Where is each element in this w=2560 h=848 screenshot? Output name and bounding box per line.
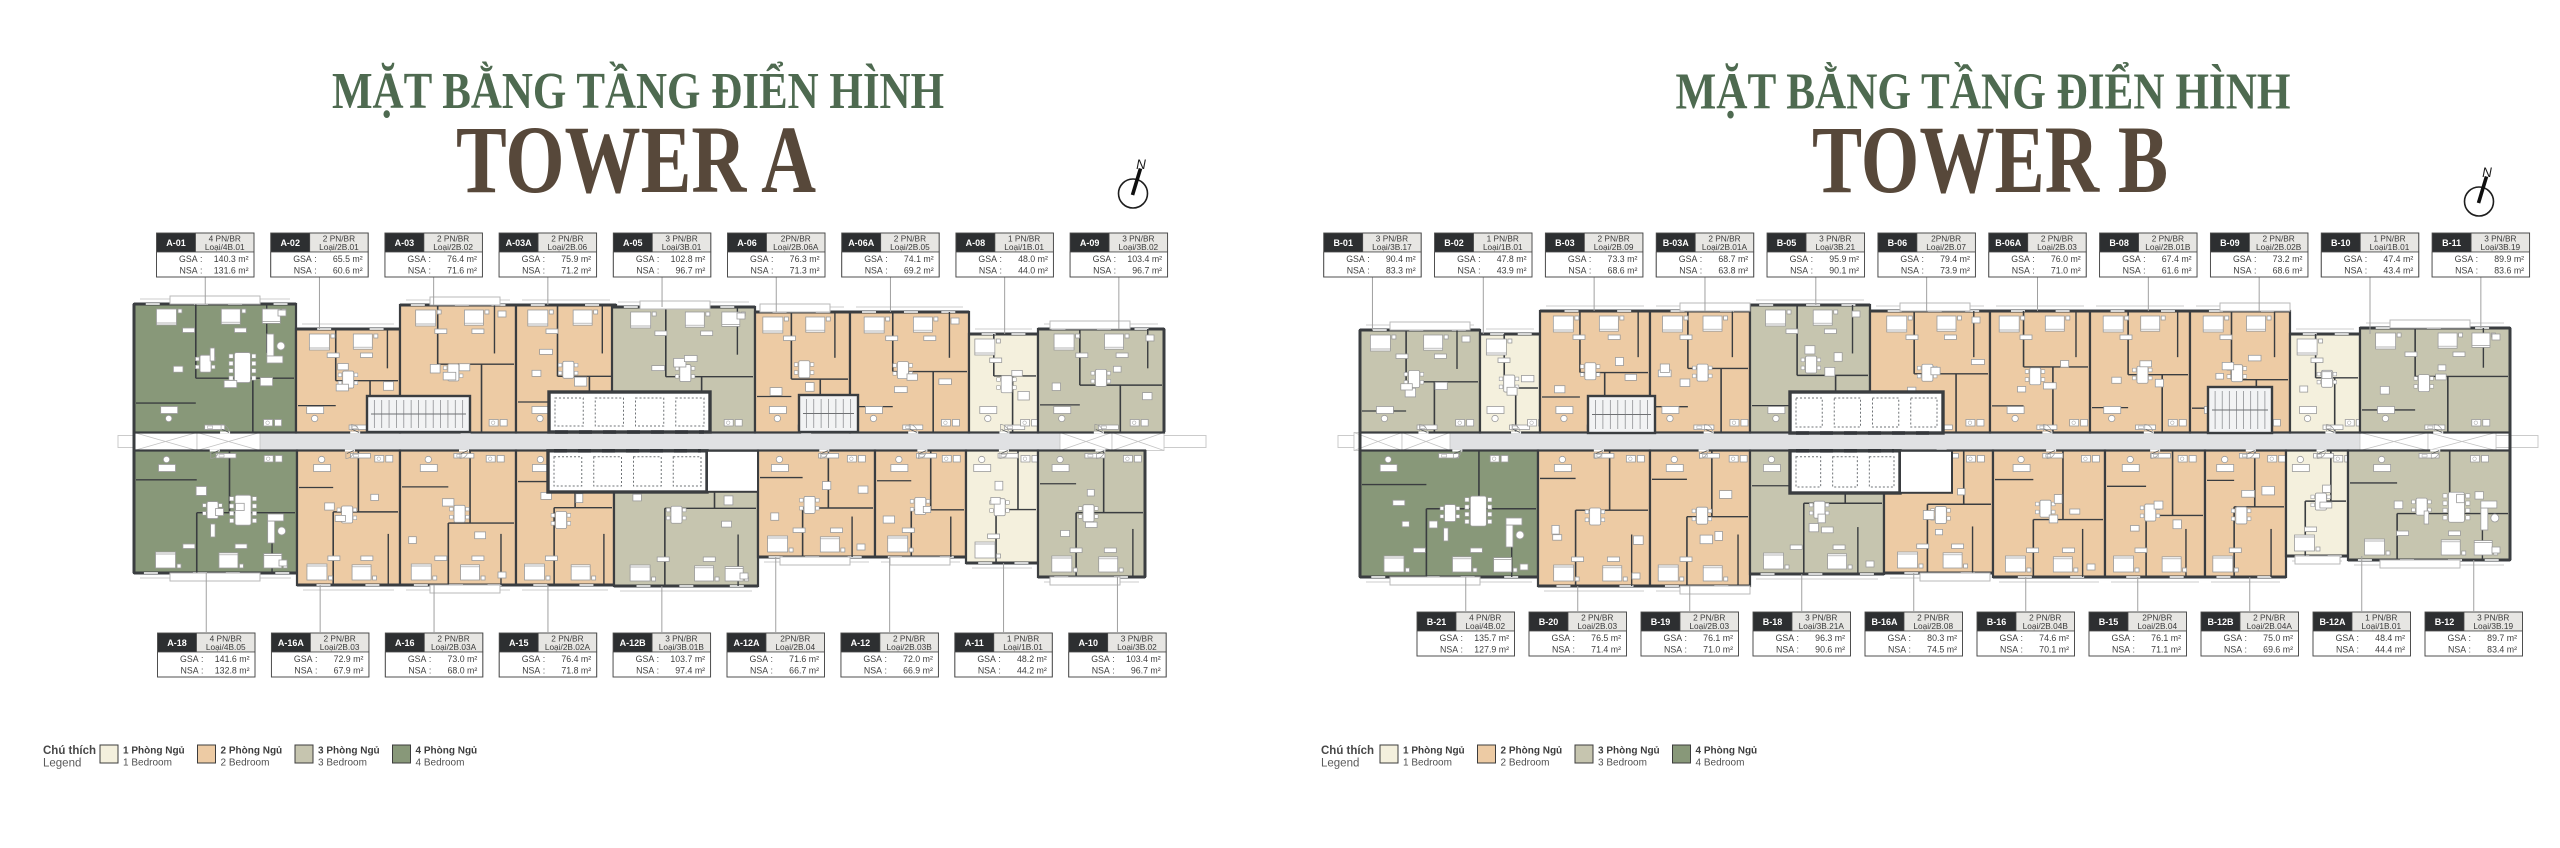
svg-text:B-15: B-15 — [2099, 617, 2119, 627]
svg-text:Loại/3B.02: Loại/3B.02 — [1119, 242, 1159, 252]
svg-text:71.1 m²: 71.1 m² — [2151, 645, 2181, 655]
svg-text:79.4 m²: 79.4 m² — [1940, 254, 1970, 264]
svg-text:44.0 m²: 44.0 m² — [1018, 266, 1048, 276]
svg-text:NSA :: NSA : — [408, 666, 431, 676]
svg-text:90.1 m²: 90.1 m² — [1829, 266, 1859, 276]
svg-text:90.6 m²: 90.6 m² — [1815, 645, 1845, 655]
svg-text:GSA :: GSA : — [1091, 654, 1114, 664]
svg-text:A-09: A-09 — [1080, 238, 1100, 248]
svg-text:GSA :: GSA : — [864, 254, 887, 264]
svg-text:90.4 m²: 90.4 m² — [1386, 254, 1416, 264]
svg-text:B-08: B-08 — [2109, 238, 2129, 248]
svg-text:Loại/2B.04: Loại/2B.04 — [2137, 621, 2177, 631]
svg-text:NSA :: NSA : — [1552, 645, 1575, 655]
svg-text:83.4 m²: 83.4 m² — [2487, 645, 2517, 655]
svg-text:A-18: A-18 — [167, 638, 187, 648]
svg-text:B-19: B-19 — [1651, 617, 1671, 627]
svg-text:GSA :: GSA : — [2011, 254, 2034, 264]
svg-text:74.1 m²: 74.1 m² — [904, 254, 934, 264]
svg-text:A-02: A-02 — [280, 238, 300, 248]
svg-text:73.0 m²: 73.0 m² — [447, 654, 477, 664]
svg-text:A-05: A-05 — [623, 238, 643, 248]
svg-text:GSA :: GSA : — [1457, 254, 1480, 264]
svg-text:2 Bedroom: 2 Bedroom — [221, 758, 270, 769]
svg-text:60.6 m²: 60.6 m² — [333, 266, 363, 276]
svg-text:NSA :: NSA : — [2336, 645, 2359, 655]
svg-text:71.6 m²: 71.6 m² — [789, 654, 819, 664]
svg-text:NSA :: NSA : — [1679, 266, 1702, 276]
svg-text:GSA :: GSA : — [2336, 633, 2359, 643]
svg-text:71.0 m²: 71.0 m² — [2051, 266, 2081, 276]
svg-text:B-06: B-06 — [1888, 238, 1908, 248]
svg-text:103.4 m²: 103.4 m² — [1126, 654, 1161, 664]
svg-text:Loại/2B.03: Loại/2B.03 — [2037, 242, 2077, 252]
svg-text:A-12: A-12 — [851, 638, 871, 648]
svg-text:GSA :: GSA : — [408, 654, 431, 664]
svg-text:GSA :: GSA : — [2233, 254, 2256, 264]
svg-text:96.7 m²: 96.7 m² — [675, 266, 705, 276]
svg-text:Loại/4B.02: Loại/4B.02 — [1465, 621, 1505, 631]
svg-text:1 Phòng Ngủ: 1 Phòng Ngủ — [123, 746, 185, 757]
svg-text:A-12B: A-12B — [620, 638, 647, 648]
svg-text:GSA :: GSA : — [2455, 254, 2478, 264]
svg-text:A-06A: A-06A — [848, 238, 875, 248]
svg-text:Loại/1B.01: Loại/1B.01 — [1003, 642, 1043, 652]
svg-text:Loại/4B.01: Loại/4B.01 — [205, 242, 245, 252]
svg-text:NSA :: NSA : — [408, 266, 431, 276]
svg-text:76.0 m²: 76.0 m² — [2051, 254, 2081, 264]
svg-text:4 Bedroom: 4 Bedroom — [1696, 758, 1745, 769]
svg-text:71.8 m²: 71.8 m² — [561, 666, 591, 676]
svg-text:GSA :: GSA : — [750, 254, 773, 264]
svg-text:A-11: A-11 — [965, 638, 984, 648]
svg-text:GSA :: GSA : — [636, 654, 659, 664]
svg-text:3 Phòng Ngủ: 3 Phòng Ngủ — [318, 746, 380, 757]
svg-text:3 Phòng Ngủ: 3 Phòng Ngủ — [1598, 746, 1660, 757]
svg-text:73.3 m²: 73.3 m² — [1608, 254, 1638, 264]
svg-text:71.0 m²: 71.0 m² — [1703, 645, 1733, 655]
svg-text:76.1 m²: 76.1 m² — [1703, 633, 1733, 643]
svg-text:Loại/2B.03: Loại/2B.03 — [1577, 621, 1617, 631]
svg-text:Loại/3B.21A: Loại/3B.21A — [1799, 621, 1845, 631]
svg-text:GSA :: GSA : — [1776, 633, 1799, 643]
svg-text:Loại/3B.21: Loại/3B.21 — [1815, 242, 1855, 252]
svg-text:131.6 m²: 131.6 m² — [214, 266, 249, 276]
svg-text:GSA :: GSA : — [1093, 254, 1116, 264]
svg-text:135.7 m²: 135.7 m² — [1474, 633, 1509, 643]
svg-text:GSA :: GSA : — [2344, 254, 2367, 264]
svg-text:74.5 m²: 74.5 m² — [1927, 645, 1957, 655]
svg-text:71.3 m²: 71.3 m² — [790, 266, 820, 276]
svg-text:GSA :: GSA : — [294, 654, 317, 664]
svg-text:NSA :: NSA : — [751, 266, 774, 276]
svg-text:NSA :: NSA : — [750, 666, 773, 676]
svg-text:68.0 m²: 68.0 m² — [447, 666, 477, 676]
svg-text:Loại/2B.01B: Loại/2B.01B — [2145, 242, 2191, 252]
svg-text:Loại/2B.07: Loại/2B.07 — [1926, 242, 1966, 252]
svg-text:67.9 m²: 67.9 m² — [334, 666, 364, 676]
svg-text:B-18: B-18 — [1763, 617, 1783, 627]
svg-text:NSA :: NSA : — [1776, 645, 1799, 655]
svg-text:Loại/2B.09: Loại/2B.09 — [1594, 242, 1634, 252]
svg-text:66.7 m²: 66.7 m² — [789, 666, 819, 676]
svg-text:NSA :: NSA : — [2344, 266, 2367, 276]
svg-text:140.3 m²: 140.3 m² — [214, 254, 249, 264]
svg-text:Loại/1B.01: Loại/1B.01 — [1004, 242, 1044, 252]
svg-text:Loại/3B.17: Loại/3B.17 — [1372, 242, 1412, 252]
svg-text:3 Bedroom: 3 Bedroom — [1598, 758, 1647, 769]
svg-text:A-03: A-03 — [395, 238, 415, 248]
svg-text:Loại/2B.01: Loại/2B.01 — [319, 242, 359, 252]
svg-text:GSA :: GSA : — [2448, 633, 2471, 643]
svg-text:NSA :: NSA : — [2224, 645, 2247, 655]
svg-text:N: N — [2482, 165, 2492, 180]
svg-text:Loại/3B.19: Loại/3B.19 — [2481, 242, 2521, 252]
svg-text:NSA :: NSA : — [1440, 645, 1463, 655]
svg-text:Loại/1B.01: Loại/1B.01 — [2361, 621, 2401, 631]
svg-text:NSA :: NSA : — [181, 666, 204, 676]
svg-text:80.3 m²: 80.3 m² — [1927, 633, 1957, 643]
svg-text:NSA :: NSA : — [636, 266, 659, 276]
svg-text:B-20: B-20 — [1539, 617, 1559, 627]
svg-text:GSA :: GSA : — [2224, 633, 2247, 643]
svg-text:B-02: B-02 — [1444, 238, 1464, 248]
svg-text:2 Bedroom: 2 Bedroom — [1501, 758, 1550, 769]
svg-text:Loại/2B.03A: Loại/2B.03A — [431, 642, 477, 652]
svg-text:Loại/1B.01: Loại/1B.01 — [1483, 242, 1523, 252]
svg-text:71.4 m²: 71.4 m² — [1591, 645, 1621, 655]
svg-text:NSA :: NSA : — [294, 666, 317, 676]
svg-text:48.4 m²: 48.4 m² — [2375, 633, 2405, 643]
svg-text:Loại/2B.01A: Loại/2B.01A — [1702, 242, 1748, 252]
svg-text:61.6 m²: 61.6 m² — [2162, 266, 2192, 276]
svg-text:Loại/2B.04B: Loại/2B.04B — [2023, 621, 2069, 631]
svg-text:GSA :: GSA : — [522, 254, 545, 264]
svg-text:127.9 m²: 127.9 m² — [1474, 645, 1509, 655]
svg-text:66.9 m²: 66.9 m² — [903, 666, 933, 676]
svg-text:69.6 m²: 69.6 m² — [2263, 645, 2293, 655]
svg-text:B-03: B-03 — [1555, 238, 1575, 248]
svg-text:68.7 m²: 68.7 m² — [1718, 254, 1748, 264]
svg-text:68.6 m²: 68.6 m² — [2273, 266, 2303, 276]
svg-text:GSA :: GSA : — [1440, 633, 1463, 643]
svg-text:103.7 m²: 103.7 m² — [670, 654, 705, 664]
svg-text:76.5 m²: 76.5 m² — [1591, 633, 1621, 643]
svg-text:Loại/3B.02: Loại/3B.02 — [1117, 642, 1157, 652]
svg-text:A-16A: A-16A — [278, 638, 305, 648]
svg-text:NSA :: NSA : — [2000, 645, 2023, 655]
svg-text:Loại/2B.02A: Loại/2B.02A — [545, 642, 591, 652]
svg-text:GSA :: GSA : — [179, 254, 202, 264]
svg-text:GSA :: GSA : — [977, 654, 1000, 664]
svg-text:83.6 m²: 83.6 m² — [2494, 266, 2524, 276]
svg-text:NSA :: NSA : — [1790, 266, 1813, 276]
svg-text:103.4 m²: 103.4 m² — [1127, 254, 1162, 264]
svg-text:GSA :: GSA : — [636, 254, 659, 264]
svg-text:76.4 m²: 76.4 m² — [561, 654, 591, 664]
svg-text:72.0 m²: 72.0 m² — [903, 654, 933, 664]
svg-text:A-15: A-15 — [509, 638, 529, 648]
svg-text:71.6 m²: 71.6 m² — [447, 266, 477, 276]
svg-text:GSA :: GSA : — [1888, 633, 1911, 643]
svg-text:NSA :: NSA : — [1347, 266, 1370, 276]
svg-text:NSA :: NSA : — [180, 266, 203, 276]
svg-text:GSA :: GSA : — [522, 654, 545, 664]
svg-text:47.8 m²: 47.8 m² — [1497, 254, 1527, 264]
svg-text:96.3 m²: 96.3 m² — [1815, 633, 1845, 643]
svg-text:44.2 m²: 44.2 m² — [1017, 666, 1047, 676]
svg-text:Loại/2B.03: Loại/2B.03 — [320, 642, 360, 652]
svg-text:NSA :: NSA : — [2233, 266, 2256, 276]
svg-text:Legend: Legend — [1321, 758, 1359, 770]
svg-text:1 Bedroom: 1 Bedroom — [1403, 758, 1452, 769]
svg-text:A-08: A-08 — [966, 238, 986, 248]
svg-text:1 Bedroom: 1 Bedroom — [123, 758, 172, 769]
svg-text:GSA :: GSA : — [1346, 254, 1369, 264]
svg-text:N: N — [1136, 157, 1146, 172]
svg-text:43.9 m²: 43.9 m² — [1497, 266, 1527, 276]
svg-text:47.4 m²: 47.4 m² — [2383, 254, 2413, 264]
svg-text:TOWER B: TOWER B — [1812, 106, 2168, 213]
svg-text:B-03A: B-03A — [1663, 238, 1690, 248]
svg-text:A-06: A-06 — [737, 238, 757, 248]
svg-text:Loại/2B.03: Loại/2B.03 — [1689, 621, 1729, 631]
svg-text:69.2 m²: 69.2 m² — [904, 266, 934, 276]
svg-text:NSA :: NSA : — [2123, 266, 2146, 276]
svg-text:65.5 m²: 65.5 m² — [333, 254, 363, 264]
svg-text:48.0 m²: 48.0 m² — [1018, 254, 1048, 264]
svg-text:NSA :: NSA : — [978, 666, 1001, 676]
svg-text:NSA :: NSA : — [1568, 266, 1591, 276]
svg-text:Legend: Legend — [43, 758, 81, 770]
svg-text:Loại/2B.02: Loại/2B.02 — [433, 242, 473, 252]
svg-text:GSA :: GSA : — [1552, 633, 1575, 643]
svg-text:2 Phòng Ngủ: 2 Phòng Ngủ — [1501, 746, 1563, 757]
svg-text:GSA :: GSA : — [750, 654, 773, 664]
svg-text:Loại/2B.04A: Loại/2B.04A — [2247, 621, 2293, 631]
svg-text:3 Bedroom: 3 Bedroom — [318, 758, 367, 769]
svg-text:Chú thích: Chú thích — [43, 745, 96, 757]
svg-text:GSA :: GSA : — [863, 654, 886, 664]
svg-text:NSA :: NSA : — [1664, 645, 1687, 655]
svg-text:NSA :: NSA : — [522, 266, 545, 276]
svg-text:NSA :: NSA : — [1092, 666, 1115, 676]
svg-text:73.9 m²: 73.9 m² — [1940, 266, 1970, 276]
svg-text:Loại/2B.02B: Loại/2B.02B — [2256, 242, 2302, 252]
svg-text:NSA :: NSA : — [636, 666, 659, 676]
svg-text:B-05: B-05 — [1777, 238, 1797, 248]
svg-text:67.4 m²: 67.4 m² — [2162, 254, 2192, 264]
svg-text:GSA :: GSA : — [1568, 254, 1591, 264]
svg-text:B-06A: B-06A — [1995, 238, 2022, 248]
svg-text:GSA :: GSA : — [1679, 254, 1702, 264]
svg-text:GSA :: GSA : — [1664, 633, 1687, 643]
svg-text:Chú thích: Chú thích — [1321, 745, 1374, 757]
svg-text:B-11: B-11 — [2442, 238, 2461, 248]
svg-text:1 Phòng Ngủ: 1 Phòng Ngủ — [1403, 746, 1465, 757]
svg-text:NSA :: NSA : — [2448, 645, 2471, 655]
svg-text:4 Phòng Ngủ: 4 Phòng Ngủ — [1696, 746, 1758, 757]
svg-text:NSA :: NSA : — [864, 666, 887, 676]
svg-text:GSA :: GSA : — [2000, 633, 2023, 643]
svg-text:GSA :: GSA : — [180, 654, 203, 664]
svg-text:NSA :: NSA : — [2455, 266, 2478, 276]
svg-text:B-01: B-01 — [1333, 238, 1353, 248]
svg-text:76.3 m²: 76.3 m² — [790, 254, 820, 264]
svg-text:Loại/2B.08: Loại/2B.08 — [1913, 621, 1953, 631]
svg-text:NSA :: NSA : — [865, 266, 888, 276]
svg-text:Loại/2B.03B: Loại/2B.03B — [887, 642, 933, 652]
svg-text:102.8 m²: 102.8 m² — [671, 254, 706, 264]
svg-text:44.4 m²: 44.4 m² — [2375, 645, 2405, 655]
svg-text:72.9 m²: 72.9 m² — [334, 654, 364, 664]
svg-text:GSA :: GSA : — [2122, 254, 2145, 264]
svg-text:71.2 m²: 71.2 m² — [561, 266, 591, 276]
svg-text:Loại/3B.01B: Loại/3B.01B — [659, 642, 705, 652]
svg-text:TOWER A: TOWER A — [456, 106, 816, 213]
svg-text:75.0 m²: 75.0 m² — [2263, 633, 2293, 643]
svg-text:2 Phòng Ngủ: 2 Phòng Ngủ — [221, 746, 283, 757]
svg-text:73.2 m²: 73.2 m² — [2273, 254, 2303, 264]
svg-text:GSA :: GSA : — [407, 254, 430, 264]
svg-text:Loại/3B.19: Loại/3B.19 — [2473, 621, 2513, 631]
svg-text:GSA :: GSA : — [978, 254, 1001, 264]
svg-text:96.7 m²: 96.7 m² — [1131, 666, 1161, 676]
svg-text:B-16A: B-16A — [1871, 617, 1898, 627]
svg-text:74.6 m²: 74.6 m² — [2039, 633, 2069, 643]
svg-text:NSA :: NSA : — [1093, 266, 1116, 276]
svg-text:Loại/1B.01: Loại/1B.01 — [2370, 242, 2410, 252]
svg-text:97.4 m²: 97.4 m² — [675, 666, 705, 676]
svg-text:NSA :: NSA : — [522, 666, 545, 676]
svg-text:48.2 m²: 48.2 m² — [1017, 654, 1047, 664]
svg-text:GSA :: GSA : — [293, 254, 316, 264]
svg-text:89.9 m²: 89.9 m² — [2494, 254, 2524, 264]
svg-text:76.1 m²: 76.1 m² — [2151, 633, 2181, 643]
svg-text:B-10: B-10 — [2331, 238, 2351, 248]
svg-text:76.4 m²: 76.4 m² — [447, 254, 477, 264]
svg-text:B-12B: B-12B — [2207, 617, 2234, 627]
svg-text:75.9 m²: 75.9 m² — [561, 254, 591, 264]
svg-text:89.7 m²: 89.7 m² — [2487, 633, 2517, 643]
svg-text:83.3 m²: 83.3 m² — [1386, 266, 1416, 276]
svg-text:141.6 m²: 141.6 m² — [215, 654, 250, 664]
svg-text:B-16: B-16 — [1987, 617, 2007, 627]
svg-text:B-12A: B-12A — [2319, 617, 2346, 627]
svg-text:B-21: B-21 — [1427, 617, 1447, 627]
svg-text:GSA :: GSA : — [2112, 633, 2135, 643]
svg-text:43.4 m²: 43.4 m² — [2383, 266, 2413, 276]
svg-text:Loại/2B.05: Loại/2B.05 — [890, 242, 930, 252]
svg-text:68.6 m²: 68.6 m² — [1608, 266, 1638, 276]
svg-text:A-12A: A-12A — [733, 638, 760, 648]
svg-text:70.1 m²: 70.1 m² — [2039, 645, 2069, 655]
svg-text:Loại/4B.05: Loại/4B.05 — [206, 642, 246, 652]
svg-text:63.8 m²: 63.8 m² — [1718, 266, 1748, 276]
svg-text:NSA :: NSA : — [1458, 266, 1481, 276]
svg-text:95.9 m²: 95.9 m² — [1829, 254, 1859, 264]
svg-text:Loại/3B.01: Loại/3B.01 — [662, 242, 702, 252]
svg-text:A-03A: A-03A — [506, 238, 533, 248]
svg-text:NSA :: NSA : — [1901, 266, 1924, 276]
svg-text:NSA :: NSA : — [1888, 645, 1911, 655]
svg-text:96.7 m²: 96.7 m² — [1132, 266, 1162, 276]
svg-text:Loại/2B.04: Loại/2B.04 — [775, 642, 815, 652]
svg-text:B-12: B-12 — [2435, 617, 2455, 627]
svg-text:A-16: A-16 — [395, 638, 415, 648]
svg-text:NSA :: NSA : — [294, 266, 317, 276]
svg-text:B-09: B-09 — [2220, 238, 2240, 248]
svg-text:GSA :: GSA : — [1790, 254, 1813, 264]
svg-text:NSA :: NSA : — [979, 266, 1002, 276]
svg-text:132.8 m²: 132.8 m² — [215, 666, 250, 676]
svg-text:NSA :: NSA : — [2012, 266, 2035, 276]
svg-text:A-10: A-10 — [1078, 638, 1098, 648]
svg-text:NSA :: NSA : — [2112, 645, 2135, 655]
svg-text:GSA :: GSA : — [1900, 254, 1923, 264]
svg-text:4 Bedroom: 4 Bedroom — [416, 758, 465, 769]
svg-text:A-01: A-01 — [166, 238, 186, 248]
svg-text:Loại/2B.06A: Loại/2B.06A — [773, 242, 819, 252]
svg-text:4 Phòng Ngủ: 4 Phòng Ngủ — [416, 746, 478, 757]
svg-text:Loại/2B.06: Loại/2B.06 — [548, 242, 588, 252]
